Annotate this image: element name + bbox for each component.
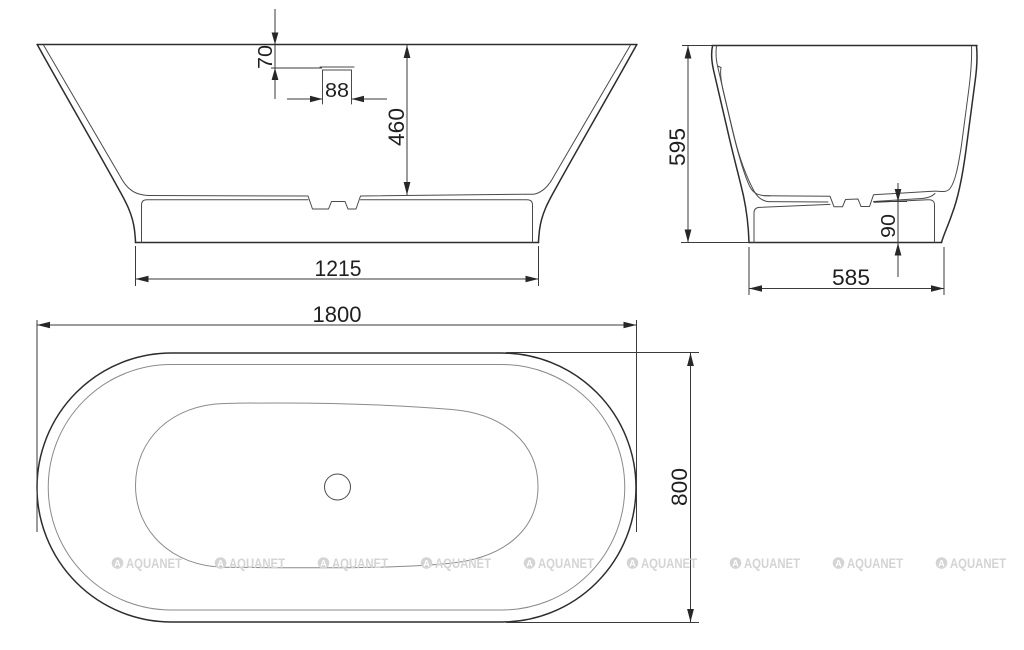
watermark-logo-letter: A: [629, 559, 636, 569]
side-right-inner-wall: [930, 46, 972, 192]
front-right-outer-wall: [539, 45, 637, 243]
front-right-inner-wall: [526, 45, 631, 194]
technical-drawing-page: 70 88 460 1215: [0, 0, 1024, 650]
dim-label-800: 800: [667, 468, 692, 506]
watermark-logo-letter: A: [526, 559, 533, 569]
watermark-label: AQUANET: [950, 555, 1006, 571]
dim-label-1215: 1215: [315, 256, 362, 281]
watermark-label: AQUANET: [641, 555, 697, 571]
front-floor-line: [148, 194, 526, 209]
watermark: A AQUANET: [627, 555, 698, 571]
front-skirt-left: [142, 200, 309, 243]
watermark-label: AQUANET: [847, 555, 903, 571]
side-left-outer-wall: [712, 46, 749, 243]
side-left-inner-wall: [716, 46, 770, 196]
watermark-label: AQUANET: [435, 555, 491, 571]
dim-label-595: 595: [665, 128, 690, 166]
watermark-logo-letter: A: [320, 559, 327, 569]
side-view: 595 90 585: [665, 46, 977, 296]
watermark-logo-letter: A: [114, 559, 121, 569]
dim-label-460: 460: [384, 108, 409, 146]
watermark-logo-letter: A: [423, 559, 430, 569]
front-left-outer-wall: [38, 45, 136, 243]
dimension-rim-to-overflow: 70: [255, 9, 322, 99]
dim-label-70: 70: [255, 45, 277, 69]
watermark: A AQUANET: [318, 555, 389, 571]
watermark: A AQUANET: [936, 555, 1007, 571]
front-view: 70 88 460 1215: [37, 9, 637, 286]
dim-label-585: 585: [832, 265, 870, 290]
dimension-overflow-width: 88: [287, 80, 387, 102]
watermark-logo-letter: A: [732, 559, 739, 569]
watermark-logo-letter: A: [938, 559, 945, 569]
dimension-width: 800: [506, 353, 699, 623]
top-outer-rim: [37, 353, 636, 622]
top-view: 1800 800: [37, 302, 699, 623]
watermark-row: A AQUANET A AQUANET A AQUANET A AQUANET …: [112, 555, 1007, 571]
side-skirt-left: [754, 204, 830, 242]
side-right-outer-wall: [942, 46, 978, 243]
watermark: A AQUANET: [421, 555, 492, 571]
watermark: A AQUANET: [112, 555, 183, 571]
top-basin-outline: [136, 403, 539, 568]
dim-label-1800: 1800: [313, 302, 362, 327]
dimension-plinth-height: 90: [876, 183, 907, 277]
side-left-lip-line: [718, 66, 769, 202]
dimension-base-length: 1215: [136, 246, 539, 286]
front-left-inner-wall: [44, 45, 149, 196]
watermark-logo-letter: A: [217, 559, 224, 569]
watermark-label: AQUANET: [332, 555, 388, 571]
watermark-label: AQUANET: [126, 555, 182, 571]
dimension-depth: 460: [384, 45, 410, 195]
bathtub-drawing: 70 88 460 1215: [0, 0, 1024, 650]
watermark: A AQUANET: [524, 555, 595, 571]
watermark-label: AQUANET: [538, 555, 594, 571]
dim-label-88: 88: [325, 80, 349, 102]
watermark-label: AQUANET: [744, 555, 800, 571]
dimension-length: 1800: [37, 302, 637, 532]
drain-circle: [325, 474, 351, 500]
dim-label-90: 90: [878, 214, 900, 238]
watermark-label: AQUANET: [229, 555, 285, 571]
dimension-base-width: 585: [749, 247, 944, 295]
watermark: A AQUANET: [833, 555, 904, 571]
watermark: A AQUANET: [215, 555, 286, 571]
front-skirt-right: [361, 200, 533, 243]
watermark-logo-letter: A: [835, 559, 842, 569]
watermark: A AQUANET: [730, 555, 801, 571]
